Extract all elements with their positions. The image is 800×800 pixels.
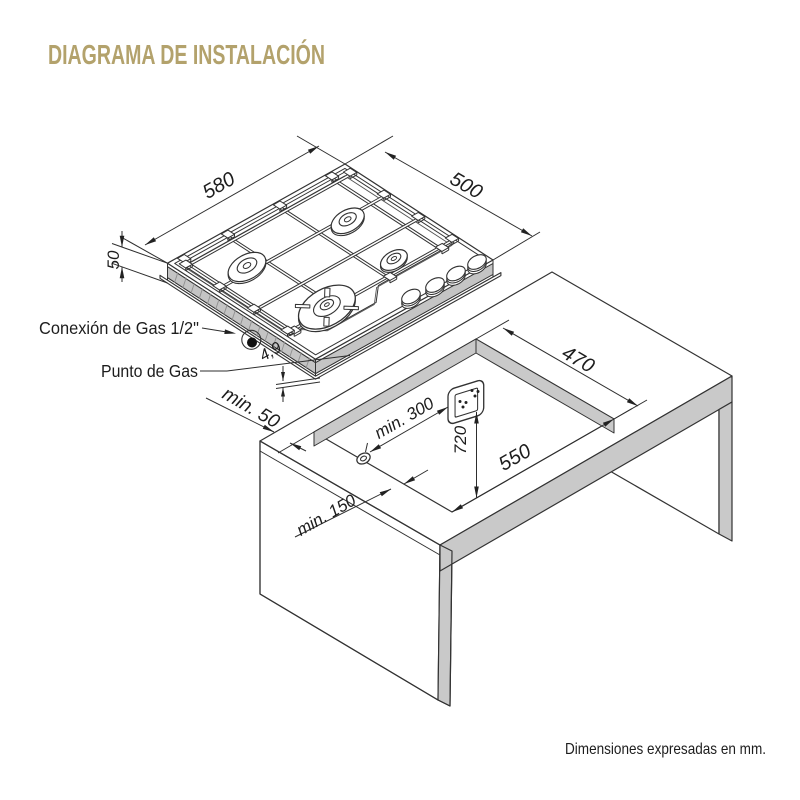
svg-text:580: 580 [199,168,239,204]
svg-text:Dimensiones expresadas en mm.: Dimensiones expresadas en mm. [565,741,766,758]
svg-text:Punto de Gas: Punto de Gas [101,361,198,381]
svg-text:min. 50: min. 50 [219,384,284,434]
svg-text:Conexión de Gas 1/2": Conexión de Gas 1/2" [39,318,199,338]
svg-text:720: 720 [451,425,470,454]
svg-text:50: 50 [104,250,123,269]
svg-text:500: 500 [446,168,486,204]
svg-text:DIAGRAMA DE INSTALACIÓN: DIAGRAMA DE INSTALACIÓN [48,39,325,70]
